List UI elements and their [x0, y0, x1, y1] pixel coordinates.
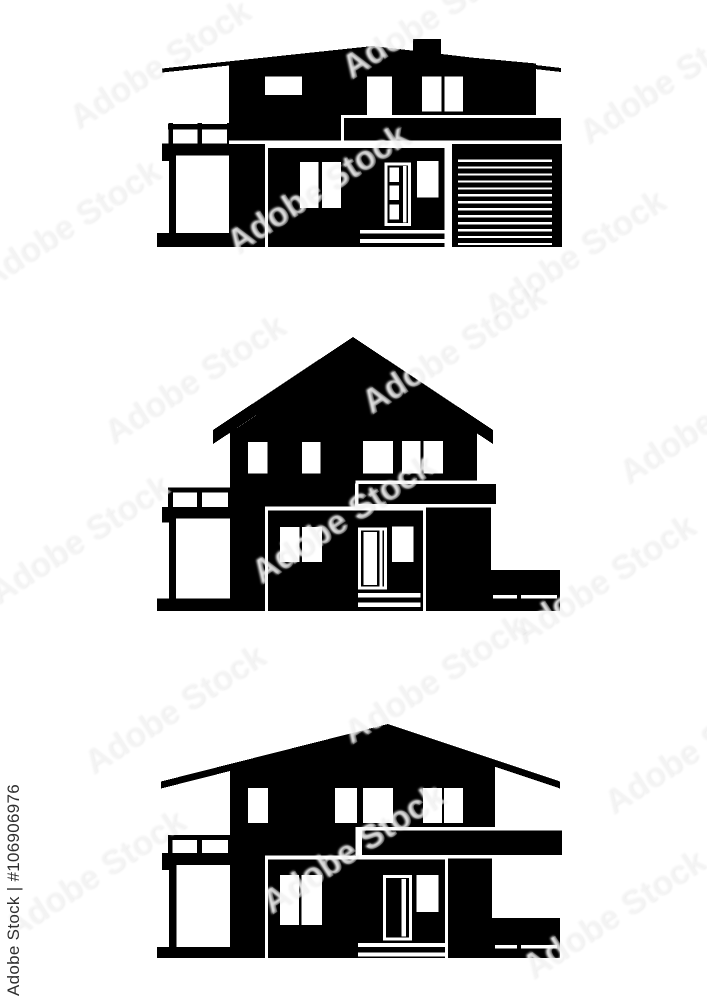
house1-porch-base: [157, 233, 263, 247]
house1-porch-column: [169, 155, 176, 234]
house3-porch-column: [169, 865, 177, 947]
house2-terrace: [491, 570, 560, 611]
adobe-stock-watermark-tile: Adobe Stock: [0, 152, 167, 298]
house2-porch-base: [157, 599, 265, 612]
house-flat-roof-garage-icon: [157, 38, 567, 248]
adobe-stock-watermark-tile: Adobe Stock: [571, 7, 707, 153]
house3-porch-base: [157, 947, 265, 958]
stock-id-watermark: Adobe Stock | #106906976: [4, 716, 24, 996]
house-gable-roof-icon: [155, 335, 565, 613]
house2-walls: [230, 428, 560, 611]
stock-image-canvas: Adobe Stock Adobe Stock Adobe Stock Adob…: [0, 0, 707, 1000]
house2-roof: [213, 337, 493, 444]
adobe-stock-watermark-tile: Adobe Stock: [0, 467, 177, 613]
house2-porch-column: [169, 519, 176, 599]
adobe-stock-watermark-tile: Adobe Stock: [596, 677, 707, 823]
house-hip-roof-carport-icon: [155, 722, 565, 960]
house3-carport: [492, 918, 560, 958]
adobe-stock-watermark-tile: Adobe Stock: [611, 347, 707, 493]
